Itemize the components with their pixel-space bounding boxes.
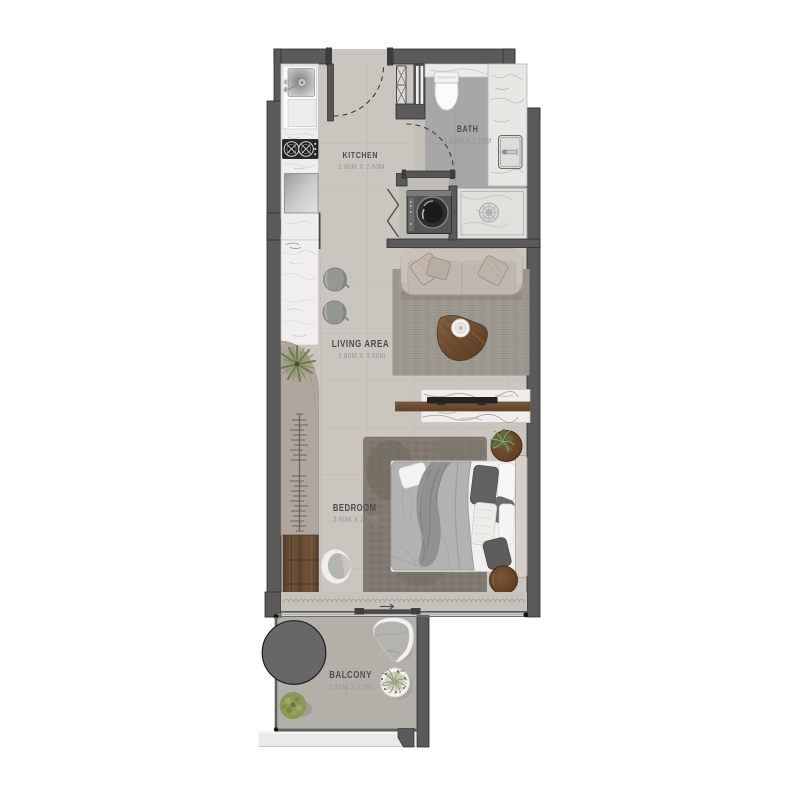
svg-text:BALCONY: BALCONY [329,670,372,681]
svg-text:1.80M X 2.60M: 1.80M X 2.60M [338,162,385,171]
svg-text:BEDROOM: BEDROOM [333,503,377,514]
svg-text:3.80M X 3.00M: 3.80M X 3.00M [338,351,386,360]
svg-text:BATH: BATH [457,124,479,134]
svg-text:3.80M X 2.70M: 3.80M X 2.70M [333,515,379,524]
svg-text:LIVING AREA: LIVING AREA [332,339,390,350]
svg-text:1.90M X 2.70M: 1.90M X 2.70M [444,136,492,145]
svg-text:2.10M X 2.0M: 2.10M X 2.0M [329,683,373,692]
svg-text:KITCHEN: KITCHEN [343,151,379,160]
